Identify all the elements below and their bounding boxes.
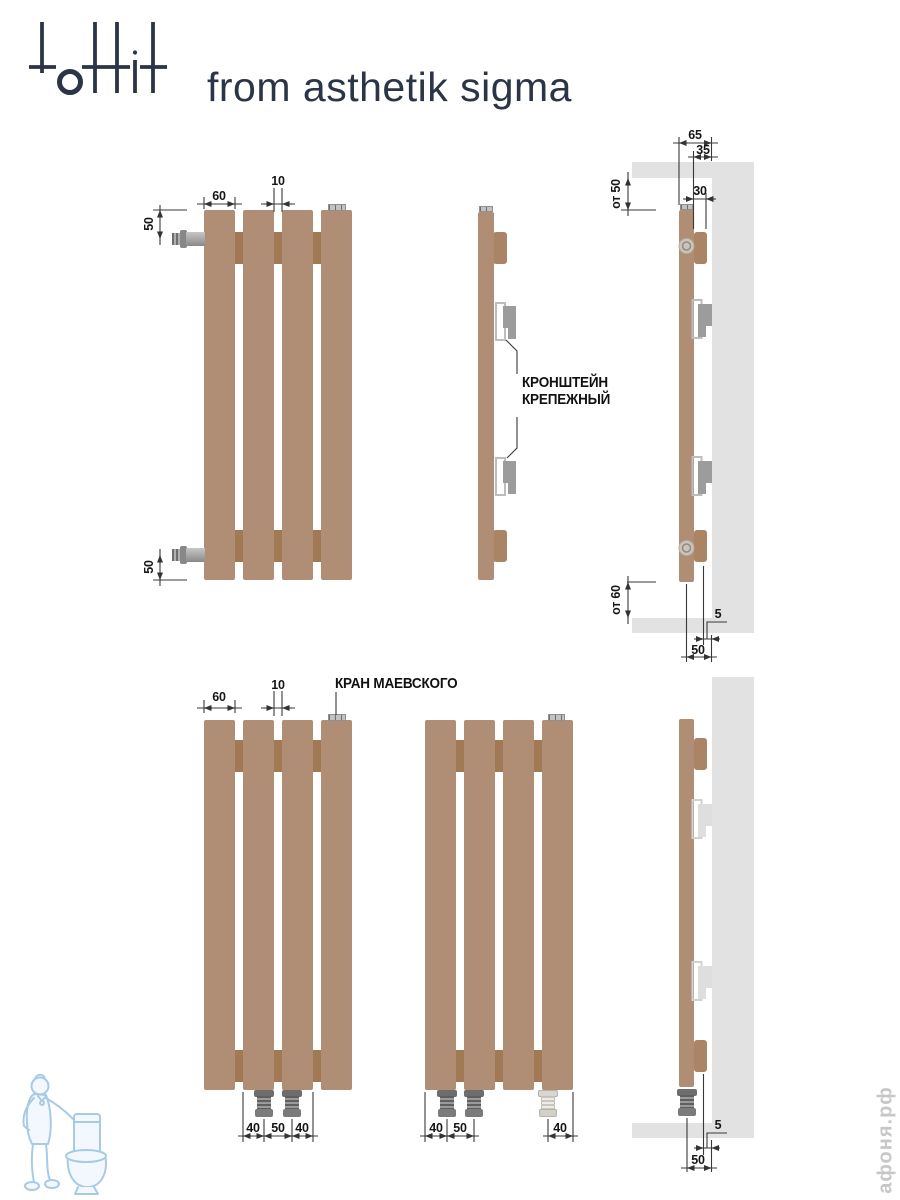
dim-slat-gap: 10: [271, 174, 285, 188]
bracket-icon: [693, 457, 713, 495]
bracket-icon-light: [693, 962, 713, 1000]
dim-inlet-offset-top: 50: [142, 217, 156, 231]
bracket-callout-line1: КРОНШТЕЙН: [522, 374, 610, 391]
dim-wall-gap-top: 5: [715, 607, 722, 621]
dim-ceiling-clearance: от 50: [609, 179, 623, 209]
bracket-callout: КРОНШТЕЙН КРЕПЕЖНЫЙ: [522, 374, 610, 408]
dim-floor-clearance: от 60: [609, 585, 623, 615]
dim-axis-to-wall-top: 50: [691, 643, 705, 657]
dim-inlet-offset-bottom: 50: [142, 560, 156, 574]
dim-slat-gap: 10: [271, 678, 285, 692]
radiator-spec-page: { "header": { "logo": "tottit", "tagline…: [0, 0, 900, 1200]
bracket-icon-light: [693, 800, 713, 838]
dim-slat-width: 60: [212, 690, 226, 704]
bracket-icon: [496, 303, 516, 340]
dim-conn-side: 40: [246, 1121, 260, 1135]
dim-axis-to-wall-bottom: 50: [691, 1153, 705, 1167]
bracket-icon: [693, 300, 713, 338]
dim-conn-center: 50: [271, 1121, 285, 1135]
dimension-lines: [153, 137, 727, 1172]
dim-depth-total: 65: [688, 128, 702, 142]
dim-conn-center: 50: [453, 1121, 467, 1135]
site-watermark: афоня.рф: [875, 1086, 898, 1194]
dim-slat-width: 60: [212, 189, 226, 203]
air-valve-callout: КРАН МАЕВСКОГО: [335, 675, 457, 692]
bracket-icon: [496, 458, 516, 495]
dim-conn-side: 40: [295, 1121, 309, 1135]
side-fitting-icon: [679, 239, 694, 254]
dim-wall-gap-bottom: 5: [715, 1118, 722, 1132]
dim-depth-slat: 30: [693, 184, 707, 198]
dimension-linework: [0, 0, 900, 1200]
dim-conn-side: 40: [429, 1121, 443, 1135]
side-fitting-icon: [679, 541, 694, 556]
plumber-watermark-icon: [12, 1070, 122, 1195]
bracket-callout-line2: КРЕПЕЖНЫЙ: [522, 391, 610, 408]
dim-conn-side: 40: [553, 1121, 567, 1135]
dim-depth-bracket: 35: [696, 143, 710, 157]
